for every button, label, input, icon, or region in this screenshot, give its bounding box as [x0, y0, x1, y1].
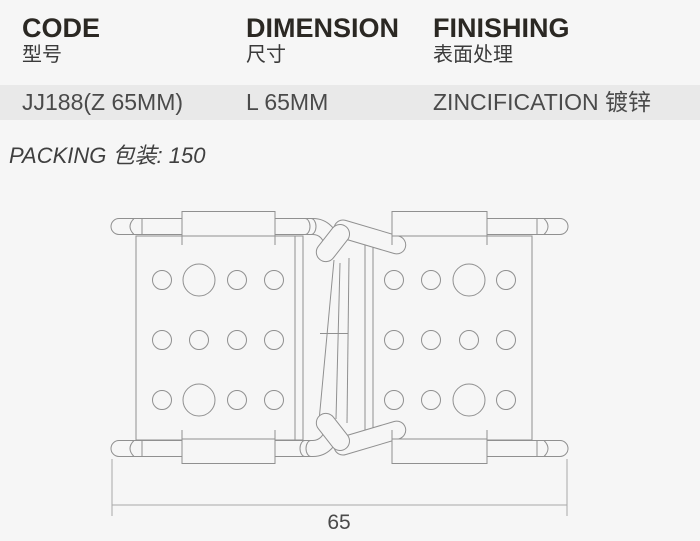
dimension-label: 65 [327, 511, 350, 534]
row-dimension-value: L 65MM [246, 85, 328, 120]
center-strap [319, 258, 349, 423]
header-column-finishing: FINISHING 表面处理 [433, 13, 570, 68]
header-finishing-zh: 表面处理 [433, 43, 570, 68]
header-code-en: CODE [22, 13, 100, 43]
header-dimension-zh: 尺寸 [246, 43, 399, 68]
dimension-lines [112, 459, 567, 516]
header-finishing-en: FINISHING [433, 13, 570, 43]
header-column-code: CODE 型号 [22, 13, 100, 68]
catalog-page: CODE 型号 DIMENSION 尺寸 FINISHING 表面处理 JJ18… [0, 0, 700, 541]
hinge-technical-drawing: 65 [0, 185, 700, 541]
table-row: JJ188(Z 65MM) L 65MM ZINCIFICATION 镀锌 [0, 85, 700, 120]
packing-note: PACKING 包装: 150 [9, 138, 205, 170]
header-dimension-en: DIMENSION [246, 13, 399, 43]
header-column-dimension: DIMENSION 尺寸 [246, 13, 399, 68]
header-code-zh: 型号 [22, 43, 100, 68]
row-code-value: JJ188(Z 65MM) [22, 85, 183, 120]
row-finishing-value: ZINCIFICATION 镀锌 [433, 85, 651, 120]
